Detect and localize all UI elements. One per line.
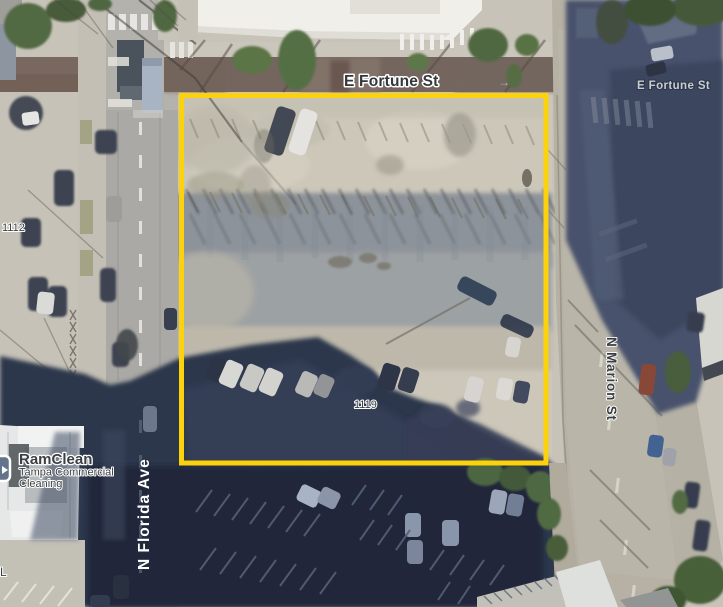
svg-text:N Florida Ave: N Florida Ave [136, 458, 153, 570]
svg-text:Cleaning: Cleaning [19, 478, 62, 490]
svg-text:E Fortune St: E Fortune St [637, 80, 710, 92]
svg-text:E Fortune St: E Fortune St [344, 73, 439, 90]
svg-text:N Marion St: N Marion St [604, 337, 619, 421]
svg-text:RamClean: RamClean [19, 451, 92, 468]
svg-text:1112: 1112 [2, 222, 25, 234]
svg-text:→: → [498, 75, 510, 89]
svg-text:1119: 1119 [354, 399, 377, 411]
svg-text:L: L [0, 565, 7, 579]
svg-text:Tampa Commercial: Tampa Commercial [19, 467, 114, 479]
